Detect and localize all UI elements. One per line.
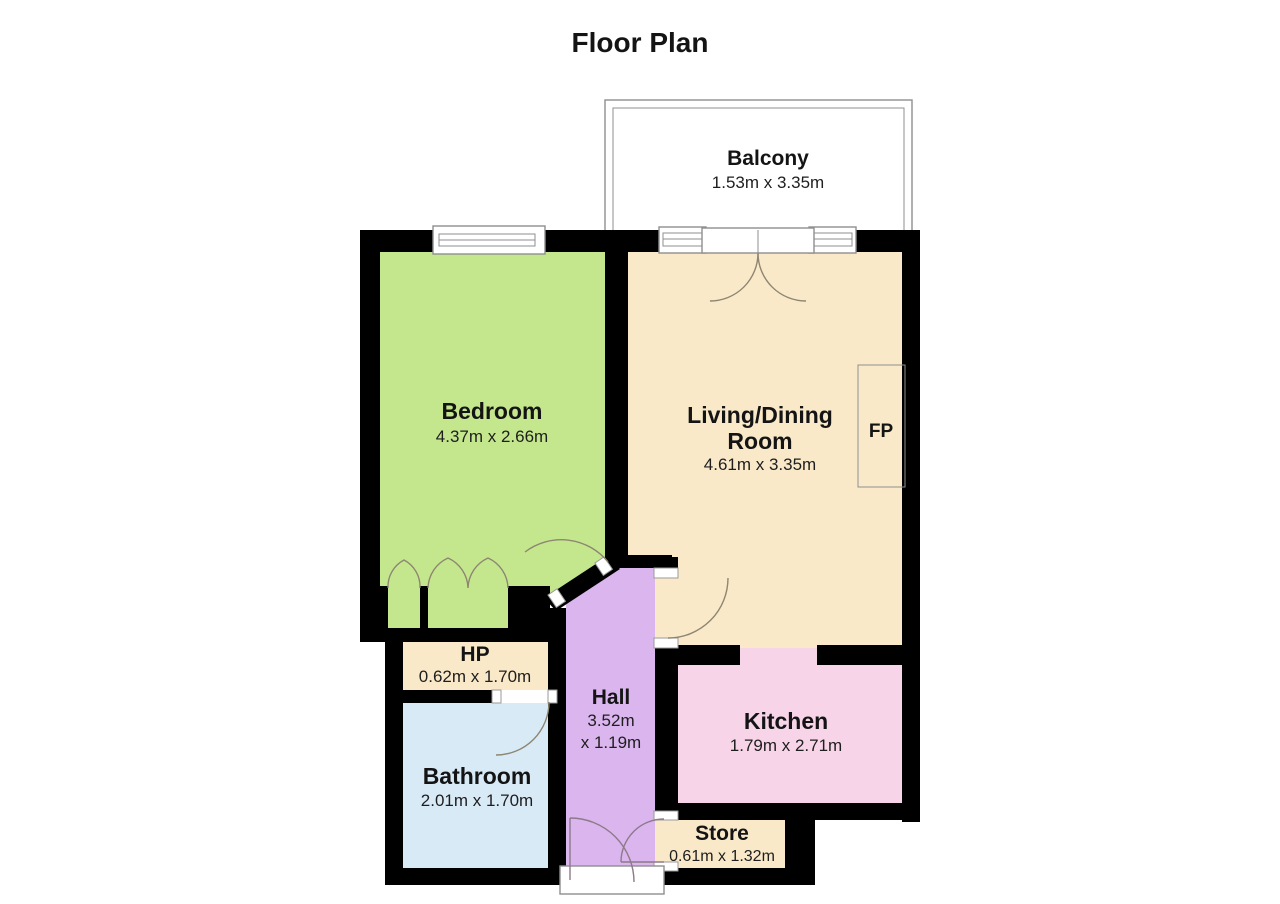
floor-plan-drawing: FP Floor Plan Balcony 1.53m x 3.35m Bedr… — [0, 0, 1280, 904]
living-window-left-frame — [659, 227, 706, 253]
jamb-living-door-bottom — [654, 638, 678, 648]
jamb-bathroom-door-right — [548, 690, 557, 703]
bedroom-dims: 4.37m x 2.66m — [436, 427, 548, 446]
living-label-line2: Room — [727, 428, 792, 454]
bedroom-window — [433, 226, 545, 254]
living-window-right — [809, 227, 856, 253]
kitchen-label: Kitchen — [744, 708, 828, 734]
living-dims: 4.61m x 3.35m — [704, 455, 816, 474]
living-window-left — [659, 227, 706, 253]
wall-bedroom-living — [605, 230, 628, 568]
bathroom-label: Bathroom — [423, 763, 532, 789]
opening-bathroom — [500, 690, 548, 703]
floor-plan-page: FP Floor Plan Balcony 1.53m x 3.35m Bedr… — [0, 0, 1280, 904]
wardrobe-left — [388, 586, 420, 628]
hp-dims: 0.62m x 1.70m — [419, 667, 531, 686]
wall-kitchen-top-right — [817, 645, 905, 665]
bedroom-wardrobes — [388, 586, 508, 628]
jamb-store-door-top — [654, 811, 678, 820]
jamb-living-door-top — [654, 568, 678, 578]
kitchen-dims: 1.79m x 2.71m — [730, 736, 842, 755]
jamb-bathroom-door-left — [492, 690, 501, 703]
entrance-threshold — [560, 866, 664, 894]
page-title: Floor Plan — [572, 27, 709, 58]
wall-right — [902, 230, 920, 822]
bedroom-label: Bedroom — [442, 398, 543, 424]
hall-dims-line2: x 1.19m — [581, 733, 641, 752]
fireplace-label: FP — [869, 421, 894, 442]
wardrobe-right — [428, 586, 508, 628]
balcony-label: Balcony — [727, 147, 809, 170]
balcony-dims: 1.53m x 3.35m — [712, 173, 824, 192]
wall-bathroom-hall — [548, 608, 566, 885]
hall-label: Hall — [592, 686, 631, 709]
bathroom-dims: 2.01m x 1.70m — [421, 791, 533, 810]
living-window-right-frame — [809, 227, 856, 253]
living-label-line1: Living/Dining — [687, 402, 833, 428]
room-kitchen — [678, 648, 905, 820]
hall-dims-line1: 3.52m — [587, 711, 634, 730]
wall-left-upper — [360, 230, 380, 642]
opening-hall-living — [655, 578, 678, 638]
hp-label: HP — [460, 643, 489, 666]
wall-left-lower — [385, 627, 403, 885]
store-label: Store — [695, 822, 749, 845]
store-dims: 0.61m x 1.32m — [669, 848, 775, 865]
